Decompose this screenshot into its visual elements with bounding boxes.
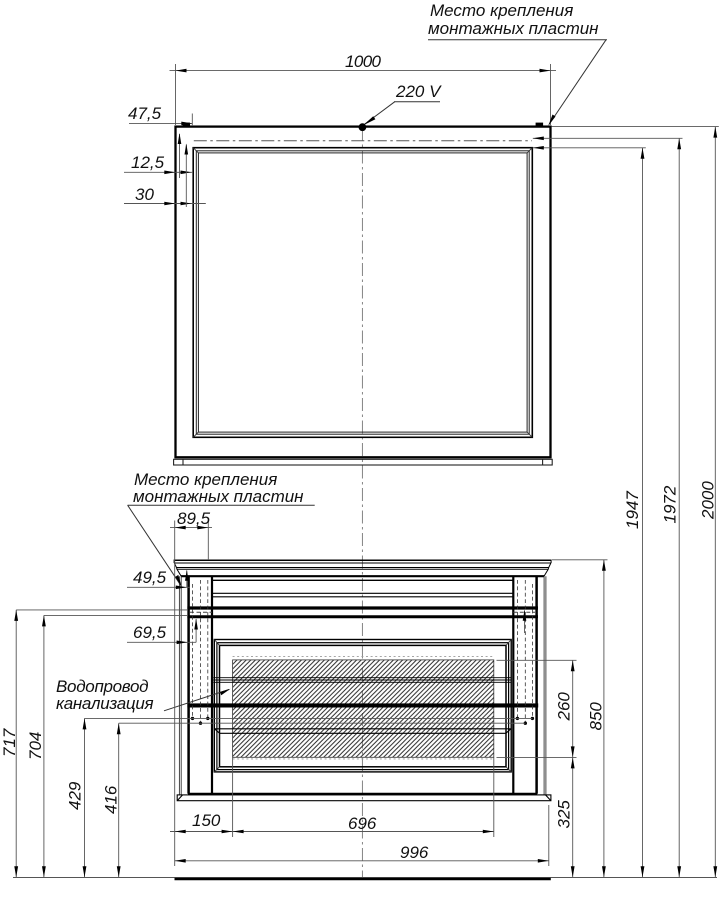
svg-text:1947: 1947: [623, 491, 642, 529]
svg-text:717: 717: [0, 728, 19, 757]
svg-text:2000: 2000: [699, 481, 718, 520]
svg-text:Место крепления: Место крепления: [430, 1, 573, 20]
svg-text:416: 416: [102, 785, 121, 814]
svg-text:220 V: 220 V: [395, 82, 442, 101]
svg-text:429: 429: [66, 781, 85, 810]
svg-text:1972: 1972: [661, 485, 680, 523]
svg-text:696: 696: [348, 814, 377, 833]
svg-text:996: 996: [400, 843, 429, 862]
svg-text:325: 325: [555, 800, 574, 829]
svg-text:47,5: 47,5: [128, 104, 162, 123]
svg-text:69,5: 69,5: [133, 623, 167, 642]
svg-text:1000: 1000: [345, 52, 382, 71]
svg-text:150: 150: [192, 811, 221, 830]
svg-text:704: 704: [26, 732, 45, 760]
svg-text:89,5: 89,5: [177, 509, 211, 528]
svg-text:30: 30: [135, 185, 154, 204]
svg-text:260: 260: [555, 692, 574, 722]
svg-text:монтажных пластин: монтажных пластин: [428, 19, 599, 38]
svg-text:850: 850: [587, 702, 606, 731]
svg-text:монтажных пластин: монтажных пластин: [133, 487, 304, 506]
svg-text:49,5: 49,5: [133, 568, 167, 587]
svg-text:12,5: 12,5: [131, 153, 165, 172]
svg-text:канализация: канализация: [56, 694, 153, 713]
